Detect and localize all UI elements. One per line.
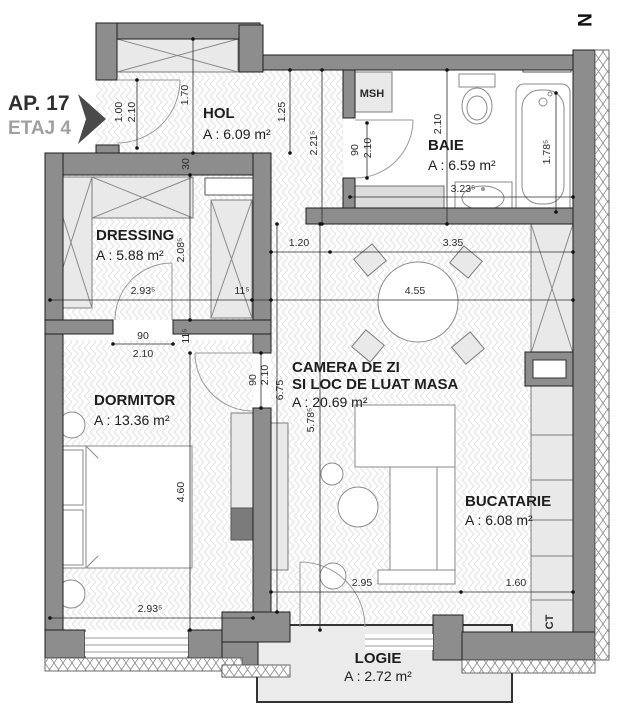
dim-living-depth: 6.75 [274,380,286,401]
pouf-small [320,563,346,589]
dim-dressing-width: 2.93⁵ [131,285,156,297]
dim-living-bottom-w: 2.95 [352,577,373,589]
dim-dressing-door-h: 2.10 [133,348,154,360]
dim-wall-115a: 11⁵ [234,285,249,297]
dim-tub-length: 1.78⁵ [541,140,553,165]
floorplan-drawing: 1.00 2.10 1.70 1.25 2.21⁵ 90 2.10 2.10 3… [0,0,626,720]
room-baie-name: BAIE [428,137,464,154]
dim-bath-depth: 2.10 [432,114,444,135]
living-cabinet [271,423,288,570]
dim-wall-115b: 11⁵ [180,328,192,343]
title-block: AP. 17 ETAJ 4 [8,92,106,144]
dim-kitchen-w: 1.60 [506,577,527,589]
room-camera-name2: SI LOC DE LUAT MASA [292,376,459,393]
dressing-wardrobe-top [92,177,193,218]
kitchen-counter [531,386,573,645]
pouf [338,487,378,527]
dim-entry-door-h: 2.10 [126,102,138,123]
dim-bath-door-h: 2.10 [362,138,374,159]
tv-unit-bedroom [231,413,253,540]
room-logie-name: LOGIE [355,650,402,667]
room-dormitor-area: A : 13.36 m² [94,412,170,428]
dim-dressing-depth: 2.08⁵ [175,238,187,263]
room-dressing-area: A : 5.88 m² [96,247,164,263]
dim-hall-height: 2.21⁵ [308,131,320,156]
room-dormitor-name: DORMITOR [94,392,176,409]
dim-bedroom-width: 2.93⁵ [138,603,163,615]
floorplan-canvas: 1.00 2.10 1.70 1.25 2.21⁵ 90 2.10 2.10 3… [0,0,626,720]
dim-entry-door-w: 1.00 [113,102,125,123]
dim-bedroom-depth: 4.60 [175,482,187,503]
dressing-niche [205,178,253,195]
room-bucatarie-name: BUCATARIE [465,493,551,510]
room-camera-area: A : 20.69 m² [292,394,368,410]
floor-label: ETAJ 4 [8,118,71,139]
room-bucatarie-area: A : 6.08 m² [465,512,533,528]
room-logie-area: A : 2.72 m² [344,668,412,684]
apartment-label: AP. 17 [8,92,70,115]
dim-living-seg2: 3.35 [443,237,464,249]
dim-hol-width: 1.25 [276,102,288,123]
boiler-label: CT [544,614,556,629]
dim-living-seg1: 1.20 [289,237,310,249]
bath-cabinet [355,186,444,210]
dim-bath-door-w: 90 [349,144,361,156]
washing-machine-label: MSH [360,88,385,100]
bedroom-window [85,632,188,656]
room-camera-name: CAMERA DE ZI [292,359,400,376]
hol-wardrobe [117,39,238,72]
room-hol-area: A : 6.09 m² [203,126,271,142]
dim-bedroom-door-w: 90 [247,374,259,386]
dim-bedroom-door-h: 2.10 [259,365,271,386]
room-dressing-name: DRESSING [96,227,174,244]
pouf-small [321,463,343,485]
dim-dressing-door-w: 90 [137,330,149,342]
north-indicator: N [573,13,594,27]
dim-bath-width: 3.23⁵ [451,183,476,195]
dim-wall-30: 30 [180,158,192,170]
room-baie-area: A : 6.59 m² [428,157,496,173]
dim-hol-depth: 1.70 [179,85,191,106]
toilet [459,74,495,124]
bed [53,446,192,568]
living-wardrobe [531,224,573,353]
dim-living-width: 4.55 [405,285,426,297]
logie-window [365,634,433,650]
dim-living-depth2: 5.78⁵ [305,408,317,433]
room-hol-name: HOL [203,105,235,122]
